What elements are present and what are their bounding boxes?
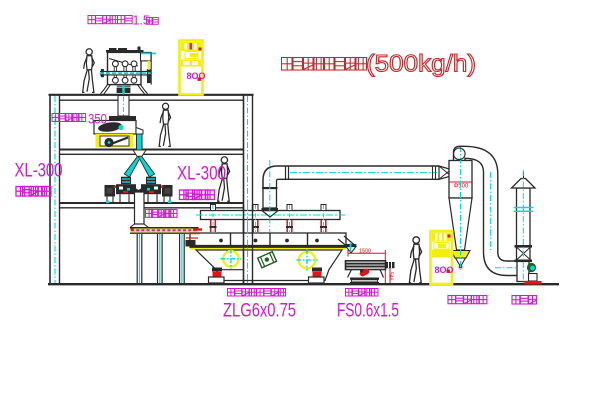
svg-text:8OO: 8OO	[435, 265, 454, 275]
svg-text:(500kg/h): (500kg/h)	[366, 51, 476, 78]
svg-text:546: 546	[387, 272, 393, 281]
svg-text:FS0.6x1.5: FS0.6x1.5	[337, 301, 399, 322]
svg-text:ZLG6x0.75: ZLG6x0.75	[223, 301, 296, 322]
svg-text:Φ500: Φ500	[454, 184, 469, 190]
svg-text:XL-300: XL-300	[177, 163, 226, 185]
svg-text:8OO: 8OO	[187, 71, 206, 81]
svg-text:350: 350	[88, 111, 107, 127]
svg-text:XL-300: XL-300	[15, 160, 63, 182]
svg-text:1500: 1500	[359, 248, 371, 254]
